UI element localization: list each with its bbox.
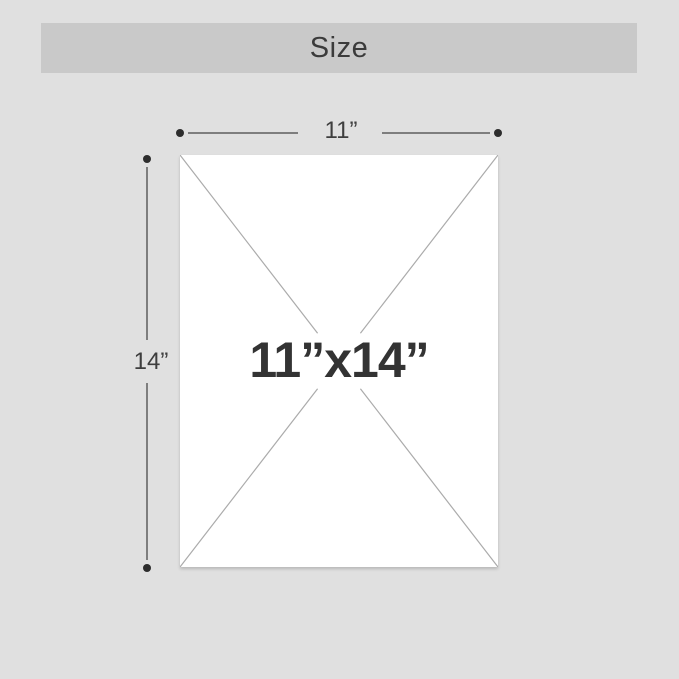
width-dim-dot-right <box>494 129 502 137</box>
size-value-label: 11”x14” <box>249 331 428 389</box>
width-dim-line-right-segment <box>382 132 490 134</box>
size-placeholder-panel: 11”x14” <box>180 155 498 567</box>
width-dim-dot-left <box>176 129 184 137</box>
size-diagram-page: Size 11” 14” 11”x14” <box>0 0 679 679</box>
height-dim-dot-bottom <box>143 564 151 572</box>
height-dim-line-top-segment <box>146 167 148 340</box>
width-dim-line-left-segment <box>188 132 298 134</box>
size-header-title: Size <box>310 32 368 65</box>
height-dim-label: 14” <box>134 348 169 376</box>
size-header-band: Size <box>41 23 637 73</box>
height-dim-line-bottom-segment <box>146 383 148 560</box>
width-dim-label: 11” <box>325 117 358 145</box>
height-dim-dot-top <box>143 155 151 163</box>
